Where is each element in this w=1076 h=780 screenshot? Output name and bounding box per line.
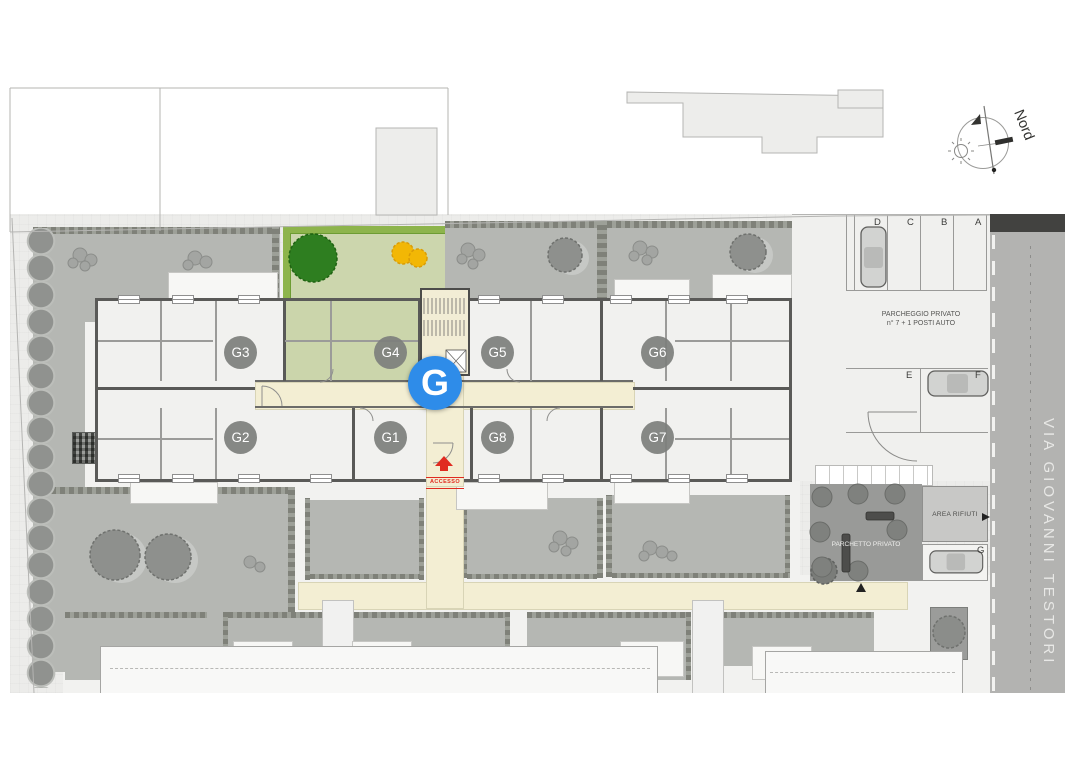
window: [118, 474, 140, 483]
building-dashed-line: [110, 668, 650, 669]
terrace: [456, 482, 548, 510]
partition-wall: [530, 408, 532, 479]
garden-plot-south-3: [612, 495, 790, 575]
stall-line: [953, 215, 954, 290]
window: [542, 295, 564, 304]
window: [542, 474, 564, 483]
playground-label: PARCHETTO PRIVATO: [812, 541, 920, 551]
partition-wall: [98, 438, 213, 440]
stall-line: [854, 215, 855, 290]
window: [238, 295, 260, 304]
unit-badge-g2[interactable]: G2: [224, 421, 257, 454]
hedge-strip: [228, 612, 508, 618]
hedge-strip: [722, 612, 874, 618]
stall-line: [846, 432, 988, 433]
interior-wall: [98, 387, 255, 390]
window: [726, 295, 748, 304]
partition-wall: [600, 301, 603, 381]
hedge-strip: [597, 498, 603, 578]
window: [668, 295, 690, 304]
stall-label-g: G: [977, 545, 984, 556]
partition-wall: [215, 408, 217, 479]
hedge-strip: [33, 227, 280, 234]
stall-label-a: A: [975, 217, 981, 228]
unit-badge-g5[interactable]: G5: [481, 336, 514, 369]
hedge-strip: [65, 612, 207, 618]
window: [172, 295, 194, 304]
terrace: [712, 274, 792, 300]
window: [478, 474, 500, 483]
terrace: [614, 482, 690, 504]
parking-title-line2: n° 7 + 1 POSTI AUTO: [856, 319, 986, 328]
partition-wall: [160, 408, 162, 479]
stall-label-b: B: [941, 217, 947, 228]
unit-badge-g7[interactable]: G7: [641, 421, 674, 454]
pedestrian-path-horizontal: [298, 582, 908, 610]
entrance-arrow-stem: [440, 465, 448, 471]
waste-area-label: AREA RIFIUTI: [932, 511, 978, 518]
playground-area: [810, 484, 922, 581]
street-name-label: VIA GIOVANNI TESTORI: [1031, 418, 1057, 678]
waste-area-box: AREA RIFIUTI: [922, 486, 988, 542]
stall-line: [846, 368, 988, 369]
hedge-strip: [686, 612, 691, 680]
tree-hedge-row: [24, 228, 58, 688]
unit-badge-g4[interactable]: G4: [374, 336, 407, 369]
stall-line: [887, 215, 888, 290]
parking-title: PARCHEGGIO PRIVATO n° 7 + 1 POSTI AUTO: [856, 310, 986, 332]
window: [238, 474, 260, 483]
stall-label-d: D: [874, 217, 881, 228]
building-dashed-line: [770, 672, 955, 673]
driveway-arrow-icon: [856, 583, 866, 592]
stall-label-e: E: [906, 370, 912, 381]
unit-badge-g6[interactable]: G6: [641, 336, 674, 369]
unit-badge-g8[interactable]: G8: [481, 421, 514, 454]
window: [118, 295, 140, 304]
page-margin-right: [1065, 0, 1076, 780]
hedge-strip: [785, 495, 790, 577]
hedge-strip: [606, 495, 612, 577]
striped-walkway: [815, 465, 933, 486]
path-connector-south-2: [692, 600, 724, 696]
garden-plot-south-1: [310, 500, 422, 576]
hedge-strip: [467, 574, 597, 579]
hedge-strip: [445, 221, 597, 228]
hedge-strip: [310, 574, 420, 579]
street-crosswalk-band: [990, 214, 1065, 232]
entrance-label: ACCESSO: [426, 477, 464, 489]
street-edge-dashed-line: [992, 234, 995, 691]
window: [726, 474, 748, 483]
stall-line: [846, 215, 847, 290]
neighbour-building-south-2: [765, 651, 963, 697]
window: [310, 474, 332, 483]
window: [610, 295, 632, 304]
stall-line: [920, 368, 921, 432]
partition-wall: [352, 408, 355, 479]
partition-wall: [470, 408, 473, 479]
hedge-strip: [612, 573, 790, 578]
partition-wall: [675, 438, 789, 440]
hedge-strip: [527, 612, 689, 618]
unit-badge-g1[interactable]: G1: [374, 421, 407, 454]
compass-icon: Nord: [948, 106, 1037, 174]
partition-wall: [98, 340, 213, 342]
selected-level-marker[interactable]: G: [408, 356, 462, 410]
site-plan-canvas: VIA GIOVANNI TESTORI: [0, 0, 1076, 780]
stall-line: [846, 290, 987, 291]
parking-zone-paving: [792, 214, 990, 481]
partition-wall: [530, 301, 532, 381]
partition-wall: [675, 340, 789, 342]
stall-line: [920, 215, 921, 290]
partition-wall: [215, 301, 217, 381]
hedge-strip: [419, 498, 424, 580]
stall-line: [986, 215, 987, 290]
stall-label-c: C: [907, 217, 914, 228]
parking-title-line1: PARCHEGGIO PRIVATO: [856, 310, 986, 319]
partition-wall: [600, 408, 603, 479]
page-margin-bottom: [0, 693, 1076, 780]
compass-north-label: Nord: [1010, 108, 1037, 143]
stall-label-f: F: [975, 370, 981, 381]
interior-wall: [633, 387, 789, 390]
hedge-strip: [305, 498, 310, 580]
neighbour-building-north: [376, 90, 883, 215]
neighbour-building-south-1: [100, 646, 658, 696]
hedge-strip: [288, 487, 295, 612]
partition-wall: [730, 408, 732, 479]
terrace: [130, 482, 218, 504]
street-access-arrow-icon: [982, 513, 990, 521]
unit-badge-g3[interactable]: G3: [224, 336, 257, 369]
window: [478, 295, 500, 304]
window: [668, 474, 690, 483]
window: [172, 474, 194, 483]
window: [610, 474, 632, 483]
